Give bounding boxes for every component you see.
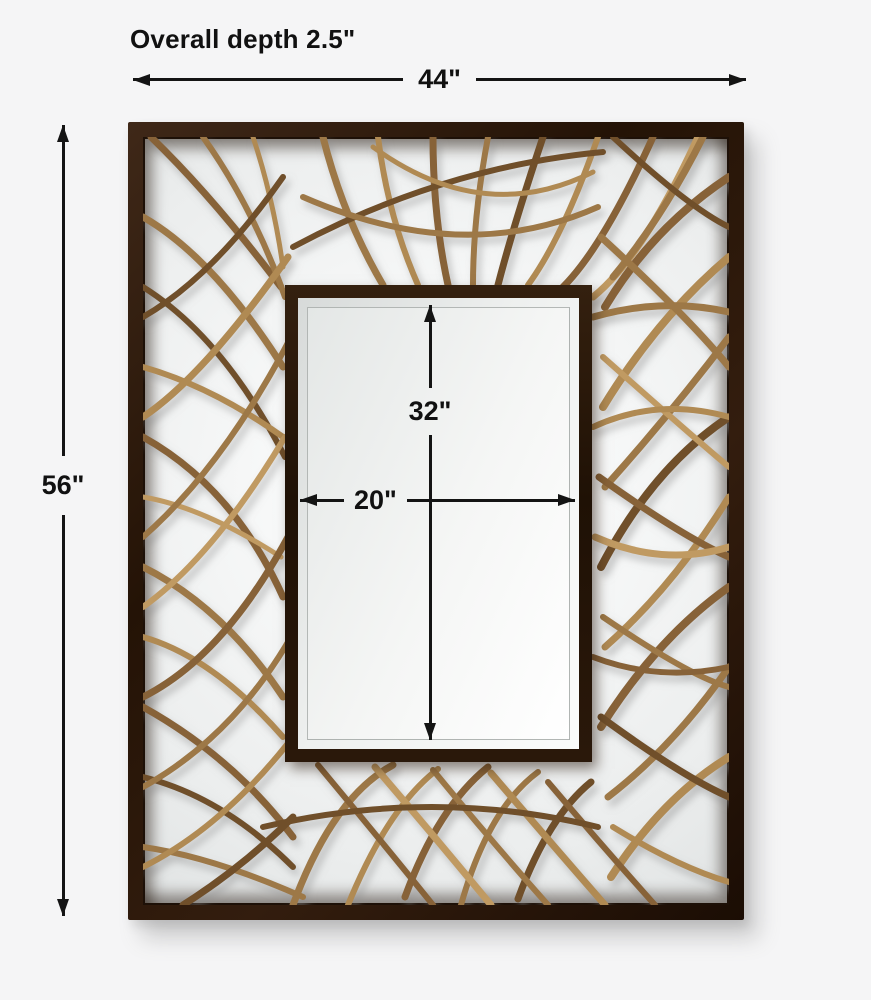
overall-width-label: 44" (418, 66, 461, 93)
arrowhead-left-icon (133, 78, 403, 81)
arrowhead-up-icon (62, 125, 65, 456)
arrowhead-right-icon (407, 499, 575, 502)
arrowhead-down-icon (429, 435, 432, 740)
overall-height-label: 56" (42, 472, 85, 499)
product-dimension-diagram: Overall depth 2.5" 44" 56" (0, 0, 871, 1000)
arrowhead-down-icon (62, 515, 65, 916)
dimension-overall-height: 56" (34, 125, 92, 916)
dimension-mirror-width: 20" (300, 486, 575, 514)
arrowhead-left-icon (300, 499, 344, 502)
mirror-width-label: 20" (354, 487, 397, 514)
arrowhead-right-icon (476, 78, 746, 81)
overall-depth-label: Overall depth 2.5" (130, 24, 355, 55)
mirror-height-label: 32" (409, 398, 452, 425)
dimension-mirror-height: 32" (401, 305, 459, 740)
arrowhead-up-icon (429, 305, 432, 388)
dimension-overall-width: 44" (133, 66, 746, 93)
